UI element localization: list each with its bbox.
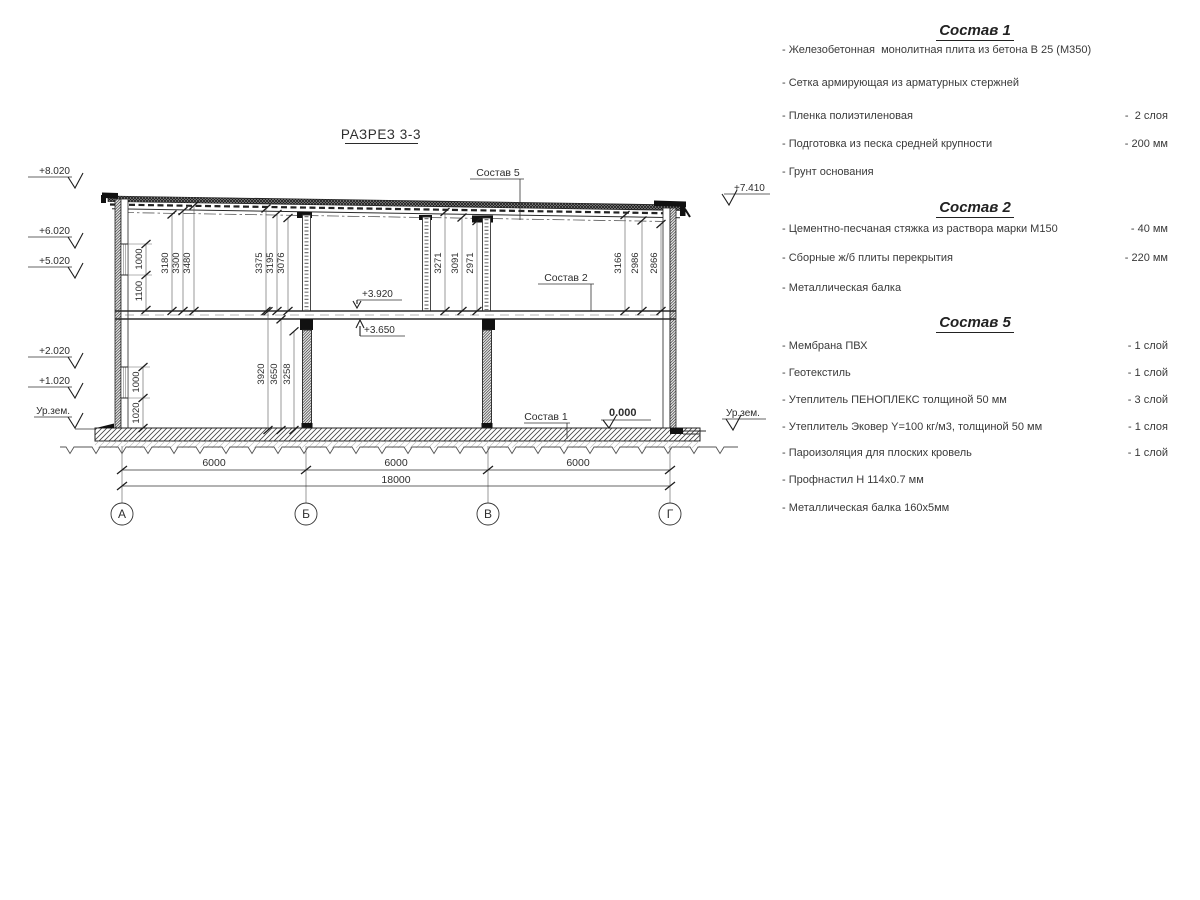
ground-break-line [60,444,738,456]
bottom-dimensions: 6000 6000 6000 18000 А Б В Г [111,446,681,525]
composition-item: - Профнастил Н 114х0.7 мм [782,474,1168,486]
composition-item: - Грунт основания [782,166,1168,178]
elevation-marks-left: +8.020 +6.020 +5.020 +2.020 +1.020 Ур.зе… [28,166,95,429]
item-qty: - 2 слоя [1125,110,1168,122]
item-qty: - 1 слой [1128,367,1168,379]
dim-span-1: 6000 [202,457,226,469]
item-text: - Пароизоляция для плоских кровель [782,447,972,459]
composition-item: - Утеплитель ПЕНОПЛЕКС толщиной 50 мм - … [782,394,1168,406]
item-qty: - 3 слой [1128,394,1168,406]
item-text: - Сетка армирующая из арматурных стержне… [782,77,1019,89]
axis-label-b: Б [302,507,310,521]
dim-span-3: 6000 [566,457,590,469]
item-text: - Геотекстиль [782,367,851,379]
dim-height: 3300 [171,252,182,273]
leader-label: Состав 2 [544,272,588,284]
composition-item: - Цементно-песчаная стяжка из раствора м… [782,223,1168,235]
elevation-label: +3.920 [362,289,393,300]
sheet: РАЗРЕЗ 3-3 [0,0,1200,900]
dim-height: 3920 [256,363,267,384]
dim-height: 3650 [269,363,280,384]
dim-height: 3166 [613,252,624,273]
interior-elevations: +3.920 +3.650 0.000 [353,289,651,428]
item-qty: - 200 мм [1125,138,1168,150]
leader-label: Состав 1 [524,411,568,423]
dim-height: 3076 [276,252,287,273]
ground-level-label: Ур.зем. [726,408,760,419]
composition-heading-1: Состав 1 [782,22,1168,39]
dim-height: 2986 [630,252,641,273]
dim-height: 3375 [254,252,265,273]
dim-height: 3271 [433,252,444,273]
composition-item: - Пароизоляция для плоских кровель - 1 с… [782,447,1168,459]
item-text: - Утеплитель ПЕНОПЛЕКС толщиной 50 мм [782,394,1007,406]
dim-height: 3195 [265,252,276,273]
dim-height: 3258 [282,363,293,384]
item-text: - Подготовка из песка средней крупности [782,138,992,150]
composition-item: - Металлическая балка [782,282,1168,294]
composition-panel: Состав 1 - Железобетонная монолитная пли… [782,0,1168,540]
item-text: - Грунт основания [782,166,874,178]
height-dimensions: 3180 3300 3480 3375 3195 3076 3271 3091 … [128,202,666,435]
elevation-label: +7.410 [734,183,765,194]
window-upper-left [121,244,128,275]
dim-span-2: 6000 [384,457,408,469]
dim-height: 3480 [182,252,193,273]
composition-item: - Геотекстиль - 1 слой [782,367,1168,379]
dim-height: 3180 [160,252,171,273]
item-qty: - 1 слой [1128,340,1168,352]
left-wall [115,199,128,428]
elevation-label: +1.020 [39,376,70,387]
item-text: - Металлическая балка [782,282,901,294]
item-text: - Пленка полиэтиленовая [782,110,913,122]
composition-heading-5: Состав 5 [782,314,1168,331]
axis-bubbles: А Б В Г [111,503,681,525]
item-text: - Металлическая балка 160х5мм [782,502,949,514]
item-text: - Сборные ж/б плиты перекрытия [782,252,953,264]
composition-heading-2: Состав 2 [782,199,1168,216]
right-wall [663,208,676,428]
elevation-label: +3.650 [364,325,395,336]
item-text: - Железобетонная монолитная плита из бет… [782,44,1091,56]
elevation-label: +8.020 [39,166,70,177]
item-qty: - 40 мм [1131,223,1168,235]
composition-item: - Пленка полиэтиленовая - 2 слоя [782,110,1168,122]
elevation-label: +2.020 [39,346,70,357]
item-qty: - 1 слой [1128,447,1168,459]
composition-item: - Подготовка из песка средней крупности … [782,138,1168,150]
ground-slab [60,424,738,457]
axis-label-a: А [118,507,126,521]
dim-window: 1000 [134,248,145,269]
composition-item: - Железобетонная монолитная плита из бет… [782,44,1168,56]
composition-item: - Мембрана ПВХ - 1 слой [782,340,1168,352]
item-text: - Цементно-песчаная стяжка из раствора м… [782,223,1058,235]
elevation-label: +5.020 [39,256,70,267]
composition-item: - Сборные ж/б плиты перекрытия - 220 мм [782,252,1168,264]
dim-total: 18000 [381,474,410,486]
drawing-title: РАЗРЕЗ 3-3 [341,127,421,144]
lower-columns [302,330,493,428]
section-drawing: РАЗРЕЗ 3-3 [0,0,780,560]
item-text: - Утеплитель Эковер Y=100 кг/м3, толщино… [782,421,1042,433]
composition-item: - Сетка армирующая из арматурных стержне… [782,77,1168,89]
elevation-label: +6.020 [39,226,70,237]
axis-label-g: Г [667,507,674,521]
item-text: - Мембрана ПВХ [782,340,867,352]
composition-item: - Утеплитель Эковер Y=100 кг/м3, толщино… [782,421,1168,433]
dim-window: 1020 [131,402,142,423]
dim-window: 1100 [134,281,145,301]
dim-height: 2971 [465,252,476,273]
ground-level-label: Ур.зем. [36,406,70,417]
item-text: - Профнастил Н 114х0.7 мм [782,474,924,486]
composition-item: - Металлическая балка 160х5мм [782,502,1168,514]
floor-slab [115,311,676,330]
upper-posts [297,212,493,311]
item-qty: - 1 слоя [1128,421,1168,433]
dim-height: 2866 [649,252,660,273]
leader-label: Состав 5 [476,167,520,179]
axis-label-v: В [484,507,492,521]
dim-window: 1000 [131,371,142,392]
page-title: РАЗРЕЗ 3-3 [341,127,421,142]
elevation-marks-right: +7.410 Ур.зем. [722,183,770,430]
window-lower-left [121,367,128,398]
elevation-label: 0.000 [609,407,637,419]
item-qty: - 220 мм [1125,252,1168,264]
dim-height: 3091 [450,252,461,273]
roof [101,193,690,222]
